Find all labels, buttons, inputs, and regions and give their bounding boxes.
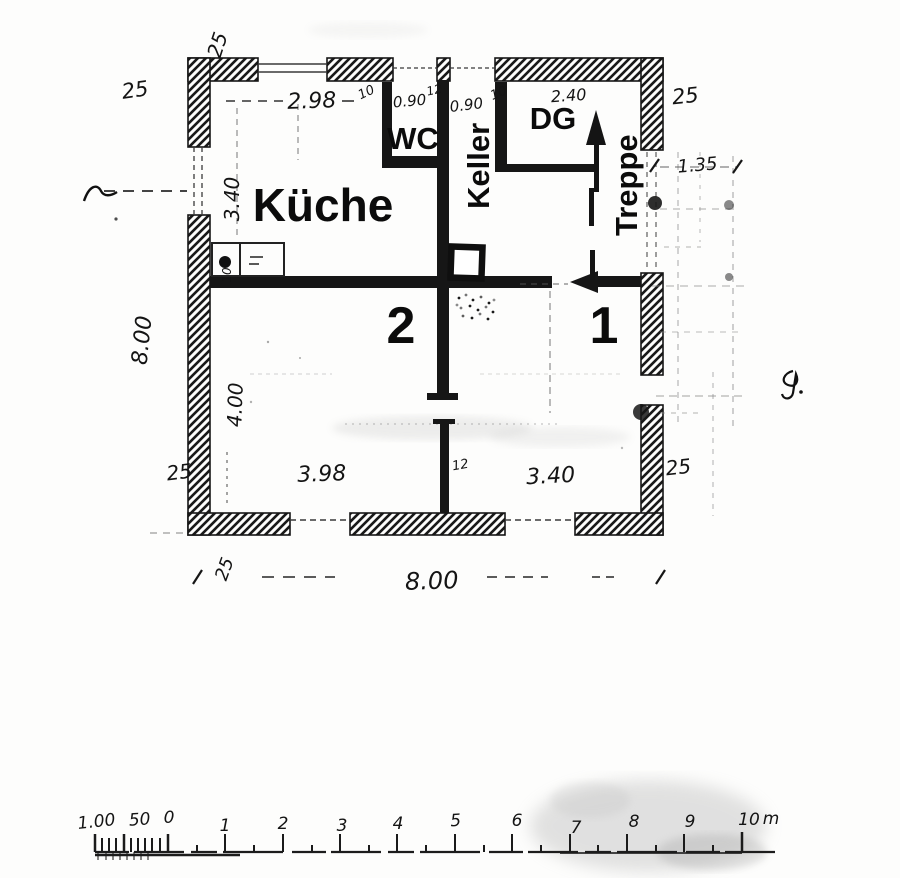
dim-partition: 12: [451, 457, 470, 475]
wall-top: [327, 58, 393, 81]
wall-bottom: [350, 513, 505, 535]
stair-arrow: [586, 110, 606, 280]
dim-attic-stair: 2.40: [550, 85, 587, 106]
cellar-label: Keller: [461, 123, 496, 209]
scale-label-10: 10: [738, 810, 760, 830]
room-divider-end-tick: [427, 393, 458, 400]
dim-annex-width: 1.35: [677, 153, 719, 177]
dim-25-bottom-corner: 25: [211, 555, 239, 584]
attic-label: DG: [530, 101, 577, 136]
stipple-patch: [456, 294, 496, 321]
squiggle-right: [782, 371, 803, 398]
dim-25-left: 25: [120, 76, 150, 103]
kitchen-label: Küche: [253, 179, 394, 231]
middle-wall-left: [210, 276, 552, 288]
dim-25-bottom-left: 25: [165, 459, 193, 486]
squiggle-left: [84, 187, 117, 201]
chimney: [450, 246, 482, 278]
attic-stair-bottom-wall: [495, 164, 599, 172]
scale-label-9: 9: [685, 812, 696, 832]
dim-wc-window: 0.90: [392, 91, 427, 112]
dim-25-top-left: 25: [202, 29, 233, 61]
wc-label: WC: [387, 121, 439, 156]
middle-wall-right: [596, 276, 641, 287]
dim-25-bottom-right: 25: [664, 454, 692, 481]
scale-label-5: 5: [450, 811, 462, 832]
dim-room2-width: 3.98: [297, 461, 347, 488]
floor-plan-drawing: Küche WC Keller DG Treppe 2 1 25 25 2.98…: [0, 0, 900, 878]
scale-label-2: 2: [278, 814, 289, 834]
dim-room1-width: 3.40: [526, 463, 576, 491]
wall-bottom: [188, 513, 290, 535]
dim-house-depth: 8.00: [128, 315, 158, 366]
scale-label-0: 0: [164, 808, 175, 828]
scanned-floor-plan-page: Küche WC Keller DG Treppe 2 1 25 25 2.98…: [0, 0, 900, 878]
room-2-label: 2: [387, 297, 416, 355]
left-exterior-marks: [84, 187, 187, 201]
wall-left: [188, 58, 210, 147]
room-1-label: 1: [590, 297, 619, 355]
dim-lower-depth: 4.00: [222, 382, 248, 427]
dim-pier-left: 10: [356, 83, 377, 104]
wall-bottom: [575, 513, 663, 535]
scale-label-6: 6: [512, 811, 523, 831]
scale-label-100: 1.00: [77, 810, 117, 834]
dim-25-top-right: 25: [671, 83, 700, 110]
scale-label-1: 1: [220, 816, 231, 836]
dim-kitchen-depth: 3.40: [220, 177, 244, 222]
scale-label-4: 4: [393, 814, 404, 834]
scale-label-8: 8: [629, 812, 640, 832]
wall-right: [641, 273, 663, 375]
wall-left: [188, 215, 210, 535]
wall-right: [641, 58, 663, 150]
scale-label-3: 3: [337, 816, 348, 836]
stair-arrowhead: [586, 110, 606, 145]
wall-top: [437, 58, 450, 81]
wall-top: [495, 58, 663, 81]
scale-unit-label: m: [763, 809, 780, 829]
bottom-partition-top-bar: [433, 419, 455, 424]
dim-house-width: 8.00: [405, 566, 459, 596]
scale-label-50: 50: [128, 809, 151, 830]
stairs-label: Treppe: [609, 134, 644, 236]
dim-counter-depth: 10: [220, 267, 234, 283]
scale-label-7: 7: [571, 818, 582, 838]
dim-cellar-window: 0.90: [449, 94, 484, 116]
dim-kitchen-window: 2.98: [287, 88, 337, 115]
bottom-partition-wall: [440, 420, 449, 513]
sink-drain: [219, 256, 231, 268]
